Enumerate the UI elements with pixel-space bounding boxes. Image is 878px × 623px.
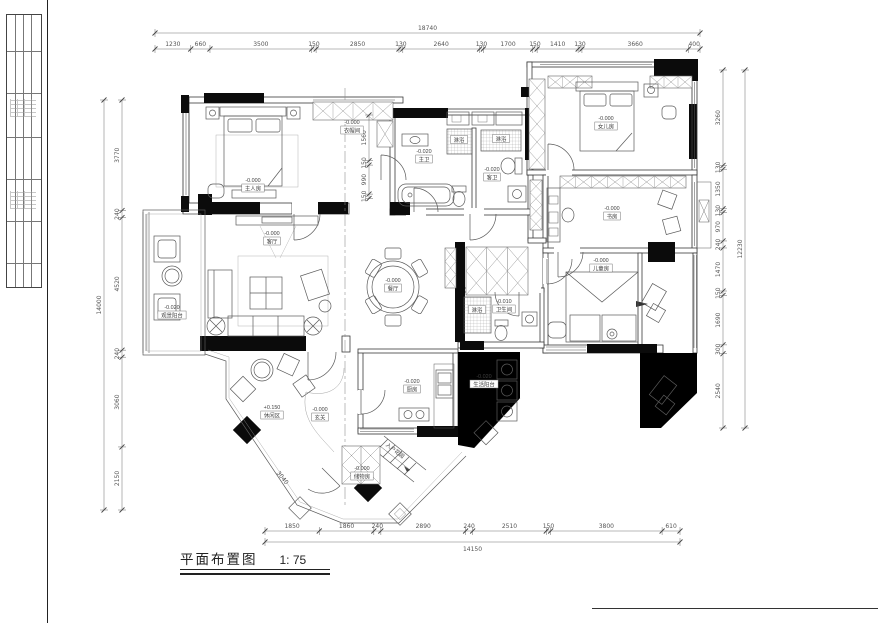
room-level: -0.020 — [484, 167, 499, 173]
room-name: 观景阳台 — [161, 311, 183, 319]
dimension-label: 3800 — [599, 523, 614, 530]
dimension-label: 2540 — [715, 383, 722, 398]
room-name: 儿童房 — [593, 264, 609, 272]
fixture-label: 淋浴 — [472, 306, 483, 314]
dimension-label: 660 — [195, 41, 207, 48]
dimension-label: 14000 — [96, 295, 103, 314]
dimension-label: 240 — [372, 523, 384, 530]
dimension-label: 2510 — [502, 523, 517, 530]
dimension-label: 240 — [114, 208, 121, 220]
room-name: 生活阳台 — [473, 380, 495, 388]
title-underline — [180, 569, 330, 570]
dimension-label: 3770 — [114, 147, 121, 162]
title-underline — [180, 573, 330, 575]
dimension-chains: 1230660350015028501302640130170015014101… — [96, 25, 749, 553]
room-name: 主卫 — [419, 155, 430, 163]
dimension-label: 3500 — [253, 41, 268, 48]
hatch-box — [466, 247, 528, 295]
room-level: -0.000 — [593, 258, 608, 264]
dimension-label: 1850 — [284, 523, 299, 530]
room-name: 主人房 — [245, 184, 261, 192]
room-name: 休闲区 — [264, 411, 281, 419]
dimension-label: 1410 — [550, 41, 565, 48]
dimension-label: 4520 — [114, 276, 121, 291]
room-name: 书房 — [607, 212, 618, 220]
room-name: 卫生间 — [496, 305, 512, 313]
room-level: -0.000 — [604, 206, 619, 212]
drawing-title: 平面布置图1: 75 — [180, 548, 340, 569]
dimension-label: 12230 — [737, 239, 744, 258]
dimension-label: 610 — [665, 523, 677, 530]
fixture-label: 淋浴 — [496, 135, 507, 143]
dimension-label: 240 — [463, 523, 475, 530]
title-scale: 1: 75 — [280, 553, 307, 567]
room-level: +0.150 — [264, 405, 281, 411]
room-name: 玄关 — [315, 413, 326, 421]
dimension-label: 2850 — [350, 41, 365, 48]
dimension-label: 300 — [715, 343, 722, 355]
dimension-label: 3060 — [114, 394, 121, 409]
room-name: 客卫 — [487, 173, 498, 181]
area-label: 入户花园 — [384, 441, 406, 460]
dimension-label: 1700 — [500, 41, 515, 48]
title-text: 平面布置图 — [180, 552, 258, 567]
dimension-label: 240 — [114, 348, 121, 360]
room-level: -0.020 — [416, 149, 431, 155]
dimension-label: 18740 — [418, 25, 437, 32]
dimension-label: 14150 — [463, 546, 482, 553]
dimension-label: 3660 — [628, 41, 643, 48]
dimension-label: 970 — [715, 221, 722, 233]
dimension-label: 1350 — [715, 181, 722, 196]
dimension-label: 1690 — [715, 312, 722, 327]
room-level: -0.000 — [264, 231, 279, 237]
room-level: -0.000 — [385, 278, 400, 284]
room-level: -0.000 — [312, 407, 327, 413]
dimension-label: 2150 — [114, 471, 121, 486]
dimension-label: 1230 — [165, 41, 180, 48]
walls-black — [181, 59, 698, 502]
room-name: 餐厅 — [388, 284, 399, 292]
room-name: 厨房 — [407, 385, 418, 393]
fixture-label: 淋浴 — [454, 136, 465, 144]
room-level: -0.020 — [164, 305, 179, 311]
room-level: -0.000 — [344, 120, 359, 126]
drawing-sheet: 1230660350015028501302640130170015014101… — [0, 0, 878, 623]
room-name: 女儿房 — [598, 122, 614, 130]
dimension-label: 240 — [715, 239, 722, 251]
dimension-label: 2890 — [416, 523, 431, 530]
room-name: 衣帽间 — [344, 126, 360, 134]
dimension-label: 400 — [688, 41, 700, 48]
floor-plan-canvas: 1230660350015028501302640130170015014101… — [0, 0, 878, 623]
hatch-box — [530, 180, 542, 230]
dimension-label: 3260 — [715, 110, 722, 125]
dimension-label: 990 — [361, 174, 368, 186]
room-name: 客厅 — [267, 237, 278, 245]
room-level: -0.020 — [404, 379, 419, 385]
dimension-label: 1470 — [715, 262, 722, 277]
room-level: -0.010 — [496, 299, 511, 305]
dimension-label: 1860 — [339, 523, 354, 530]
room-name: 储物房 — [354, 472, 370, 480]
room-level: -0.000 — [598, 116, 613, 122]
room-level: -0.020 — [476, 374, 491, 380]
room-level: -0.000 — [245, 178, 260, 184]
dimension-label: 2640 — [434, 41, 449, 48]
room-level: -0.000 — [354, 466, 369, 472]
